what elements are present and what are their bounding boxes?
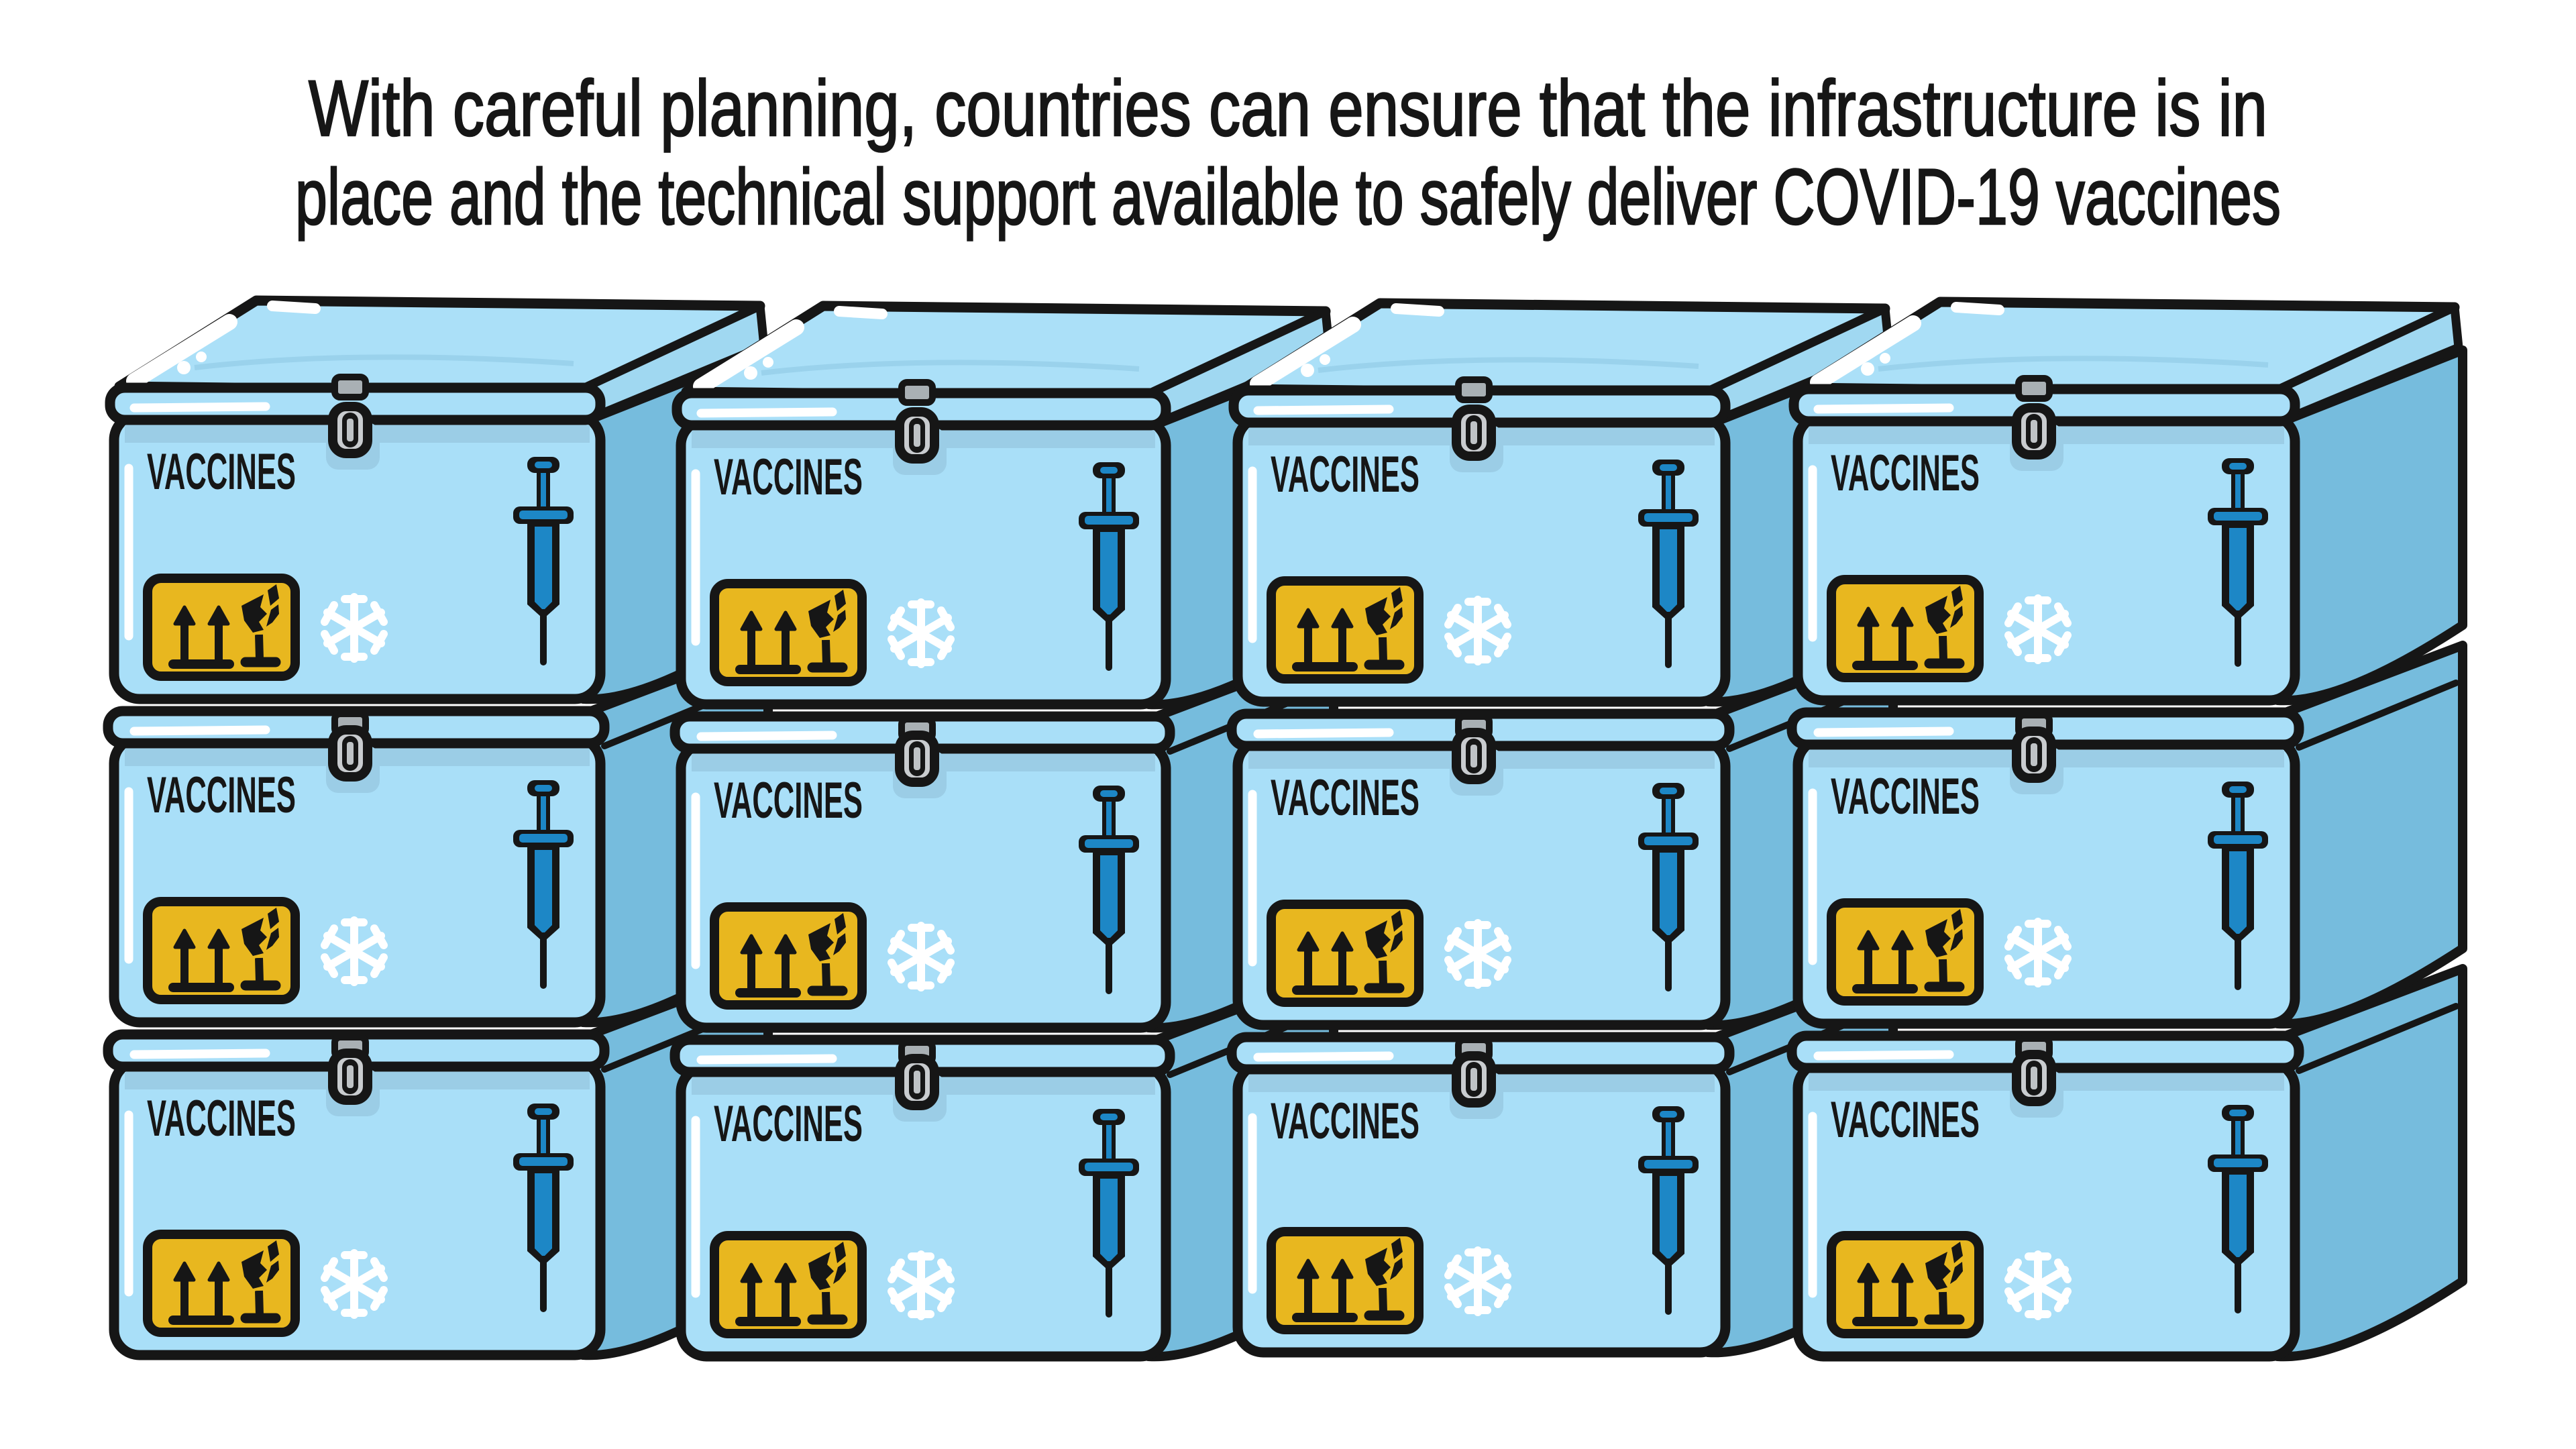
svg-text:VACCINES: VACCINES — [1271, 446, 1419, 503]
svg-text:With careful planning, countri: With careful planning, countries can ens… — [309, 64, 2267, 153]
svg-text:place and the technical suppor: place and the technical support availabl… — [295, 153, 2281, 241]
svg-text:VACCINES: VACCINES — [147, 1090, 296, 1147]
svg-text:VACCINES: VACCINES — [147, 443, 296, 500]
svg-text:VACCINES: VACCINES — [147, 767, 296, 824]
svg-text:VACCINES: VACCINES — [714, 449, 863, 506]
svg-text:VACCINES: VACCINES — [714, 1095, 863, 1152]
svg-text:VACCINES: VACCINES — [714, 772, 863, 829]
svg-text:VACCINES: VACCINES — [1831, 1091, 1980, 1148]
svg-text:VACCINES: VACCINES — [1831, 445, 1980, 502]
svg-text:VACCINES: VACCINES — [1831, 768, 1980, 825]
svg-text:VACCINES: VACCINES — [1271, 769, 1419, 826]
svg-text:VACCINES: VACCINES — [1271, 1093, 1419, 1150]
